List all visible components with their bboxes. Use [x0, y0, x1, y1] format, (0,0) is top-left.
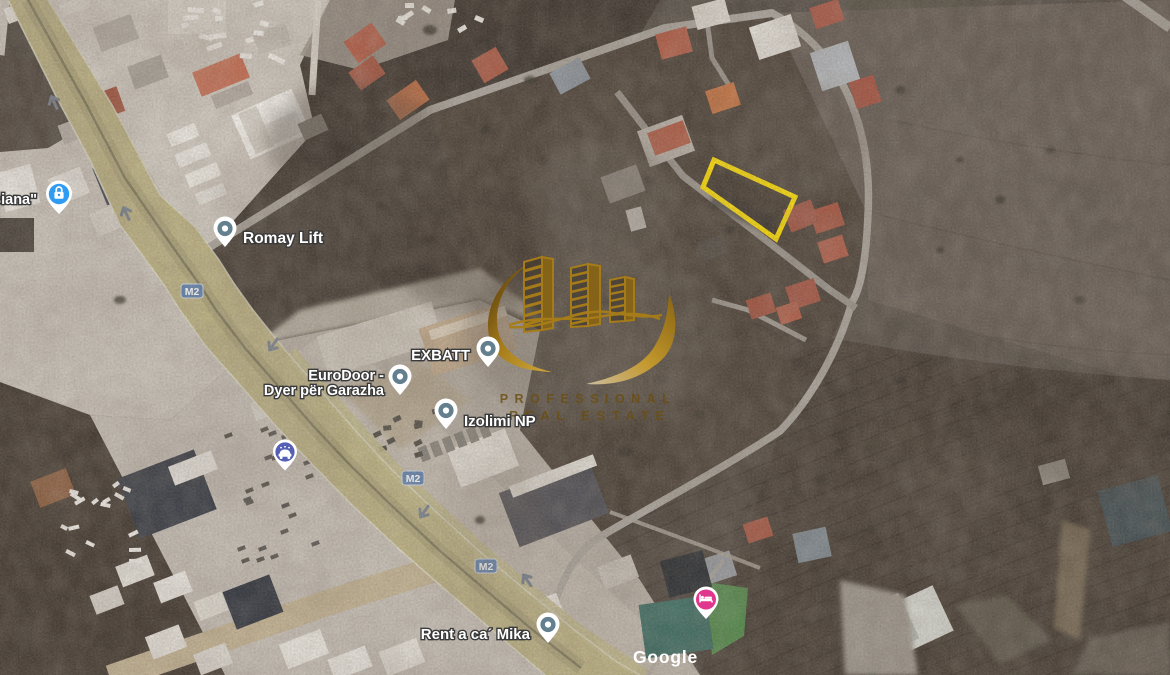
svg-text:Dyer për Garazha: Dyer për Garazha	[264, 383, 385, 399]
svg-text:EuroDoor -: EuroDoor -	[308, 368, 384, 384]
svg-text:esiana": esiana"	[0, 192, 37, 208]
svg-text:Izolimi NP: Izolimi NP	[464, 413, 536, 430]
svg-text:PROFESSIONAL: PROFESSIONAL	[500, 392, 677, 406]
svg-text:EXBATT: EXBATT	[411, 347, 470, 364]
svg-text:Google: Google	[633, 647, 698, 667]
svg-text:Romay Lift: Romay Lift	[243, 230, 323, 247]
svg-text:Rent a caˊ Mika: Rent a caˊ Mika	[421, 626, 531, 643]
